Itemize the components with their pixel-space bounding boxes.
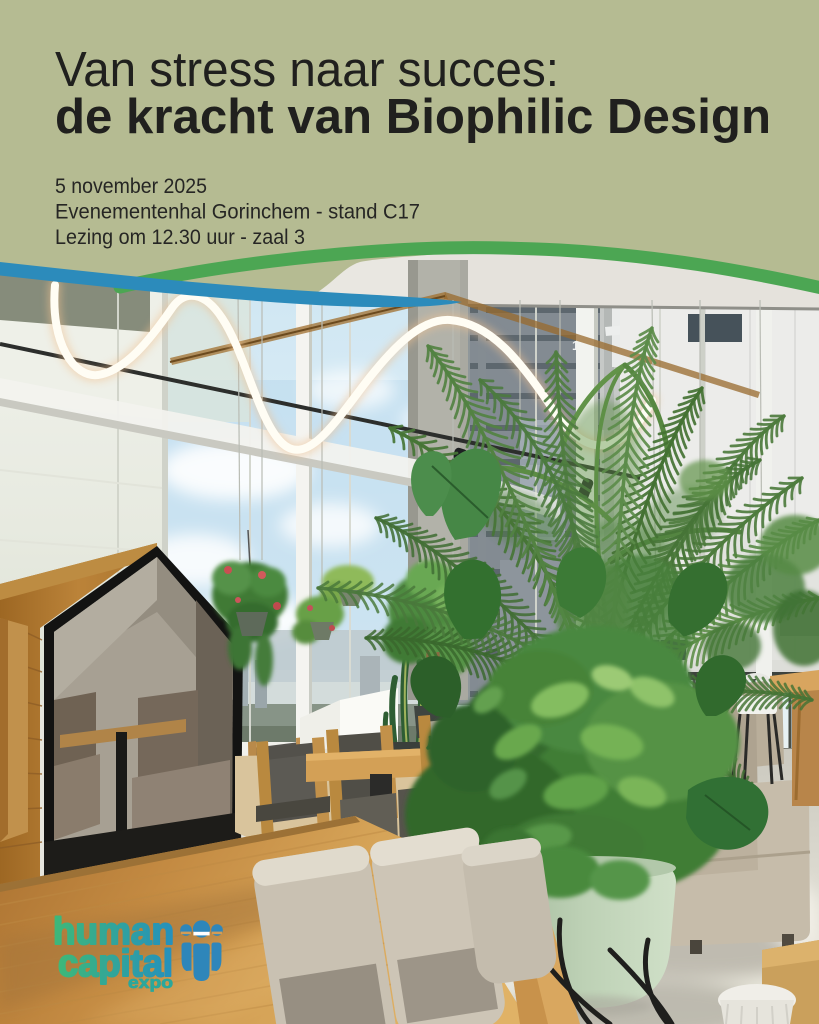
svg-text:expo: expo — [128, 973, 173, 992]
svg-text:Evenementenhal Gorinchem - sta: Evenementenhal Gorinchem - stand C17 — [55, 201, 420, 224]
svg-text:Lezing om 12.30 uur - zaal 3: Lezing om 12.30 uur - zaal 3 — [55, 226, 305, 249]
svg-text:de kracht van Biophilic Design: de kracht van Biophilic Design — [55, 90, 771, 144]
svg-text:5 november 2025: 5 november 2025 — [55, 175, 207, 198]
svg-text:Van stress naar succes:: Van stress naar succes: — [55, 43, 559, 97]
